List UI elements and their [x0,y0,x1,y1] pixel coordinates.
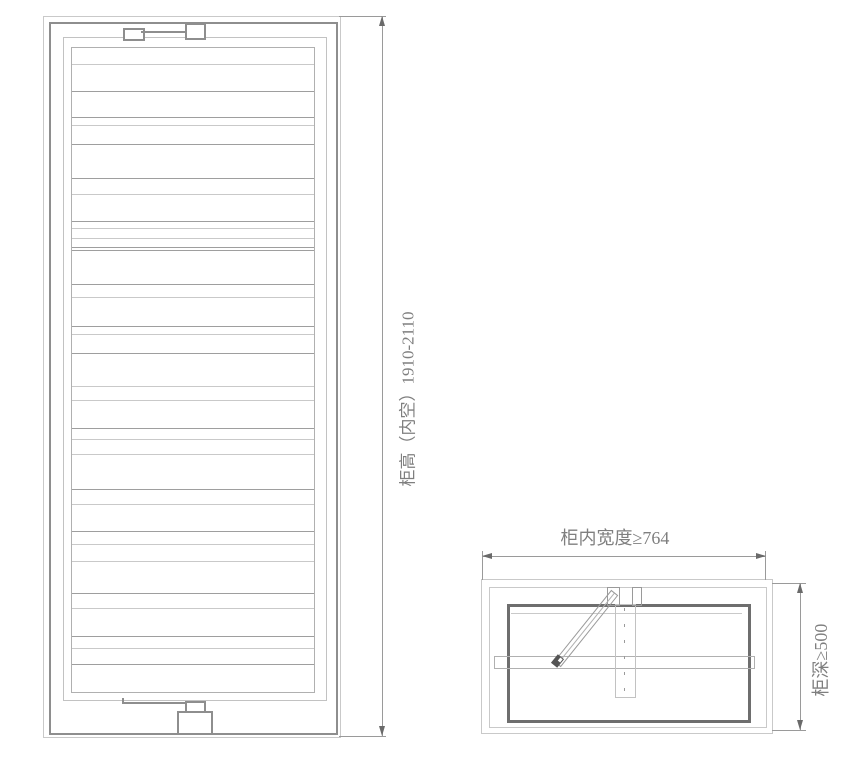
slat-line [72,504,314,505]
slat-line [72,228,314,229]
slat-line [72,664,314,665]
top-drive-connector [141,31,185,33]
slat-line [72,194,314,195]
cabinet-height-label: 柜高（内空）1910-2110 [394,311,419,486]
slat-line [72,593,314,594]
plan-arm-pivot-notch [558,657,563,662]
slat-line [72,353,314,354]
depth-extension-bottom [772,730,806,731]
slat-line [72,648,314,649]
slat-line [72,454,314,455]
depth-arrow-up-icon [797,583,803,593]
slat-line [72,439,314,440]
slat-line [72,238,314,239]
bottom-drive-motor-box [177,711,213,735]
slat-line [72,144,314,145]
slat-line [72,561,314,562]
slat-line [72,247,314,248]
slat-line [72,544,314,545]
slat-line [72,334,314,335]
slat-line [72,64,314,65]
width-arrow-right-icon [756,553,766,559]
drawing-canvas: 柜高（内空）1910-2110 柜内宽度≥764 柜深≥500 [0,0,860,757]
bottom-drive-connector [123,702,185,704]
slat-line [72,178,314,179]
slat-line [72,531,314,532]
slat-line [72,326,314,327]
slat-line [72,489,314,490]
slat-line [72,428,314,429]
slat-line [72,297,314,298]
depth-dimension-line [800,583,801,730]
height-extension-bottom [339,736,386,737]
plan-center-dashed-line [624,608,625,693]
slat-line [72,91,314,92]
slat-line [72,284,314,285]
plan-center-rail [615,604,636,698]
slat-line [72,636,314,637]
slat-line [72,250,314,251]
slat-line [72,386,314,387]
height-dimension-line [382,16,383,736]
width-dimension-line [482,556,766,557]
height-arrow-down-icon [379,726,385,736]
front-slat-area [71,47,315,693]
slat-line [72,608,314,609]
depth-arrow-down-icon [797,720,803,730]
cabinet-depth-label: 柜深≥500 [807,624,833,697]
top-drive-small-box [123,28,145,41]
cabinet-inner-width-label: 柜内宽度≥764 [561,524,670,550]
slat-line [72,400,314,401]
plan-mount-tab-right [632,587,642,606]
slat-line [72,221,314,222]
top-drive-motor-box [185,23,206,40]
slat-line [72,117,314,118]
slat-line [72,125,314,126]
height-arrow-up-icon [379,16,385,26]
width-arrow-left-icon [482,553,492,559]
